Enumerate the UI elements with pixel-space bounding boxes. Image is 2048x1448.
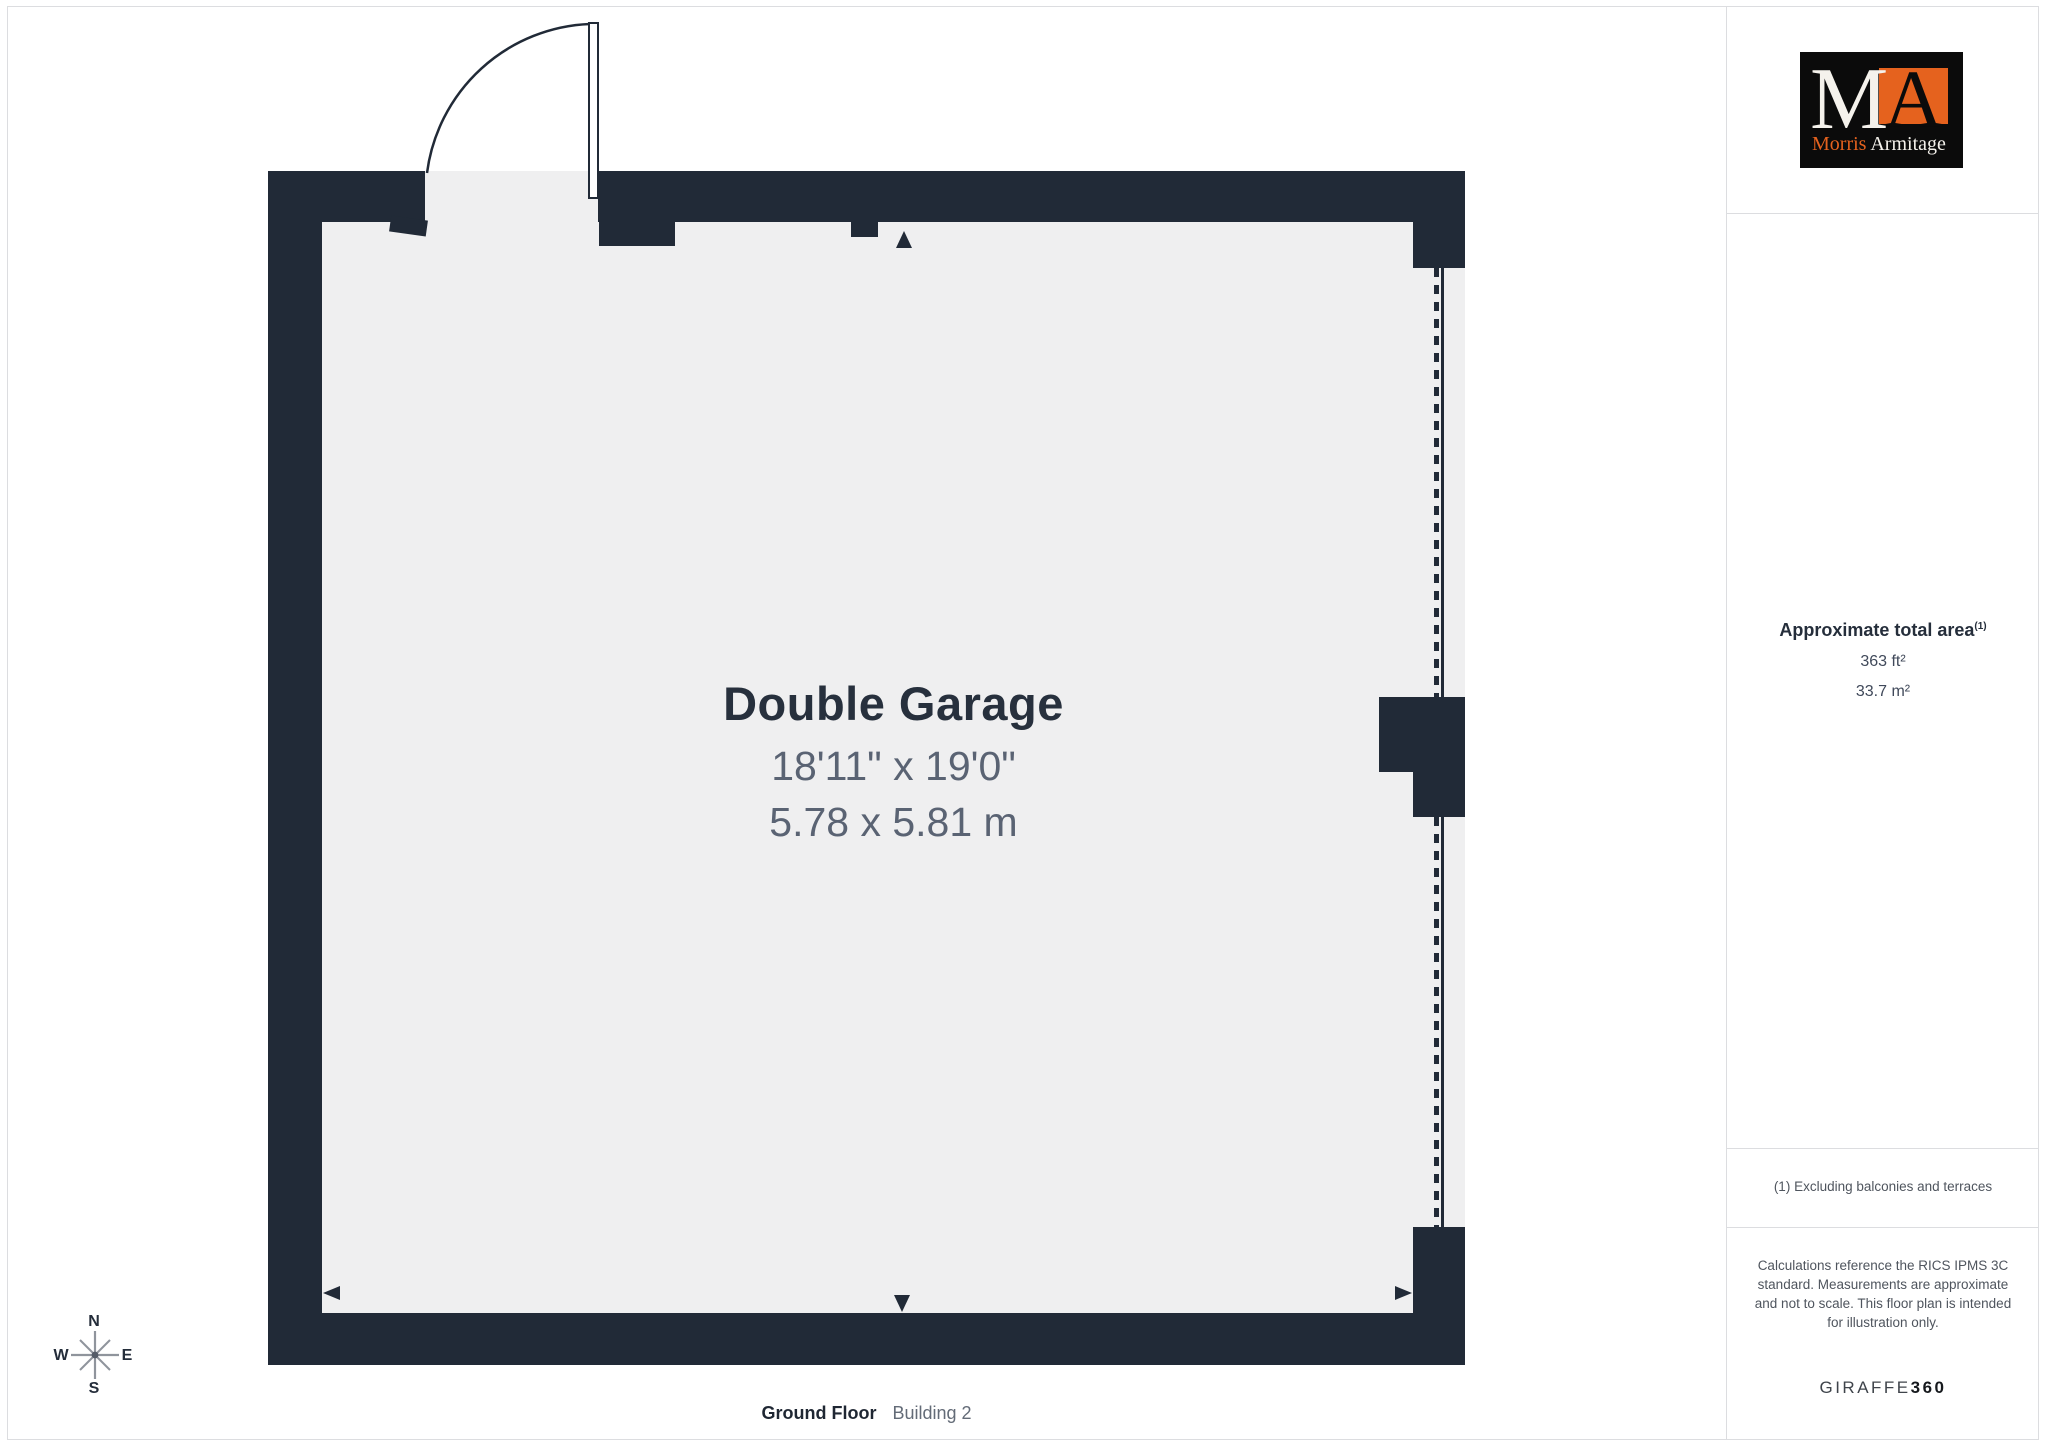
brand-name-regular: GIRAFFE (1819, 1378, 1910, 1397)
wall-tab (851, 222, 878, 237)
wall-left (268, 171, 322, 1365)
sidebar-section-divider (1727, 213, 2039, 214)
compass-west-label: W (46, 1347, 76, 1364)
garage-door-solid-line-top (1441, 268, 1444, 697)
compass-east-label: E (112, 1347, 142, 1364)
total-area-block: Approximate total area(1) 363 ft² 33.7 m… (1727, 620, 2039, 701)
logo-name-first: Morris (1812, 133, 1866, 155)
area-footnote: (1) Excluding balconies and terraces (1727, 1179, 2039, 1194)
sidebar-section-divider (1727, 1227, 2039, 1228)
doorway-floor (425, 171, 598, 222)
room-label-block: Double Garage 18'11" x 19'0" 5.78 x 5.81… (322, 676, 1465, 850)
room-dimensions-imperial: 18'11" x 19'0" (322, 738, 1465, 794)
floor-caption: Ground Floor Building 2 (268, 1403, 1465, 1424)
logo-monogram-a: A (1884, 58, 1943, 140)
door-jamb-block (599, 222, 675, 246)
building-name: Building 2 (892, 1403, 971, 1424)
floorplan-page: Double Garage 18'11" x 19'0" 5.78 x 5.81… (0, 0, 2048, 1448)
logo-name-last: Armitage (1870, 133, 1946, 155)
compass-south-label: S (79, 1380, 109, 1397)
wall-corner-bottom-right (1413, 1227, 1465, 1313)
wall-bottom (268, 1313, 1465, 1365)
total-area-title-text: Approximate total area (1779, 620, 1974, 640)
measurement-disclaimer: Calculations reference the RICS IPMS 3C … (1753, 1256, 2013, 1332)
brand-name-bold: 360 (1911, 1378, 1947, 1397)
logo-monogram-m: M (1810, 56, 1888, 144)
room-dimensions-metric: 5.78 x 5.81 m (322, 794, 1465, 850)
total-area-footnote-ref: (1) (1974, 621, 1986, 632)
opening-marker-right-icon (1395, 1286, 1412, 1300)
compass-north-label: N (79, 1313, 109, 1330)
opening-marker-up-icon (896, 231, 912, 248)
giraffe360-brand: GIRAFFE360 (1727, 1378, 2039, 1398)
wall-top-right-segment (598, 171, 1465, 222)
opening-marker-down-icon (894, 1295, 910, 1312)
total-area-imperial: 363 ft² (1727, 653, 2039, 671)
opening-marker-left-icon (323, 1286, 340, 1300)
sidebar-section-divider (1727, 1148, 2039, 1149)
garage-door-solid-line-bottom (1441, 817, 1444, 1227)
garage-door-dashed-line-top (1434, 268, 1439, 697)
info-sidebar: A M Morris Armitage Approximate total ar… (1727, 0, 2039, 1448)
garage-door-dashed-line-bottom (1434, 817, 1439, 1227)
room-title: Double Garage (322, 676, 1465, 732)
floor-name: Ground Floor (761, 1403, 876, 1424)
agency-logo: A M Morris Armitage (1800, 52, 1963, 168)
logo-wordmark: Morris Armitage (1812, 133, 1957, 156)
total-area-title: Approximate total area(1) (1727, 620, 2039, 641)
wall-corner-top-right (1413, 222, 1465, 268)
total-area-metric: 33.7 m² (1727, 683, 2039, 701)
